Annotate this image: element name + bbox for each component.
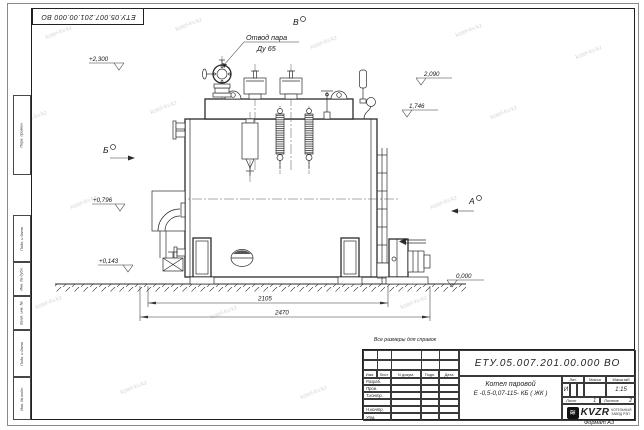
product-name-cell: Котел паровой Е -0,5-0,07-115- КБ ( ЖК ) [459,376,562,421]
lit-header: Лит. [562,376,584,383]
elevation-label: +0,796 [93,197,113,204]
lit-cell [570,383,577,397]
callout-line2: Ду 65 [256,44,277,53]
sheet-cell: Лист 1 [562,397,600,404]
sheet-value: 1 [593,398,596,404]
signature-cell [391,406,421,413]
row-label-prov: Пров. [363,385,391,392]
title-block: Изм. Лист N докум. Подп. Дата Разраб. Пр… [362,349,635,420]
signature-cell [391,385,421,392]
col-header-data: Дата [439,370,459,378]
grid-line [377,350,378,370]
row-label-utv: Утв. [363,413,391,421]
view-letter: В [293,17,299,27]
signature-cell [421,378,439,385]
mass-header: Масса [584,376,606,383]
support-leg [190,238,214,284]
left-wall-flanges [173,121,185,258]
elevation-mark-0796: +0,796 [92,197,125,211]
signature-cell [439,406,459,413]
view-letter: Б [103,145,109,155]
grid-line [439,350,440,370]
lit-cell [577,383,584,397]
signature-cell [421,399,439,406]
product-name-line1: Котел паровой [485,381,535,388]
elevation-label: 1,746 [409,103,425,110]
view-circle [301,17,306,22]
support-leg [338,238,362,284]
scale-value-cell: 1:15 [606,383,636,397]
company-cell: ≋ KVZR КОТЕЛЬНЫЙ ЗАВОД РЭП [562,404,636,421]
signature-cell [439,413,459,421]
scale-header: Масштаб [606,376,636,383]
sheets-label: Листов [604,398,619,403]
elevation-label: 2,090 [423,71,440,78]
signature-cell [421,392,439,399]
row-label-razrab: Разраб. [363,378,391,385]
grid-line [421,350,422,370]
sheets-cell: Листов 2 [600,397,636,404]
lit-value-cell: И [562,383,570,397]
view-label-b-left: Б [103,145,135,161]
sheet-label: Лист [566,398,576,403]
signature-cell [391,413,421,421]
format-label: Формат А3 [560,420,638,426]
company-sub-line2: ЗАВОД РЭП [611,413,631,417]
company-logo-icon: ≋ [567,407,579,419]
col-header-ndocum: N докум. [391,370,421,378]
row-label-nkontr: Н.контр. [363,406,391,413]
sheets-value: 2 [629,398,632,404]
elevation-label: +2,300 [89,56,109,63]
feedwater-elbow [152,191,185,258]
steam-outlet-callout: Отвод пара Ду 65 [223,33,300,68]
signature-cell [421,385,439,392]
signature-cell [439,399,459,406]
view-circle [111,145,116,150]
col-header-list: Лист [377,370,391,378]
row-label-tkontr: Т.контр. [363,392,391,399]
elevation-mark-2300: +2,300 [89,56,124,70]
signature-cell [391,392,421,399]
callout-line1: Отвод пара [246,33,287,42]
product-name-line2: Е -0,5-0,07-115- КБ ( ЖК ) [474,390,548,397]
row-label-blank [363,399,391,406]
drawing-sheet: kotel-kv.kz kotel-kv.kz kotel-kv.kz kote… [0,0,644,430]
view-label-b-top: В [293,17,306,28]
steam-outlet-valve [203,56,232,100]
signature-cell [391,378,421,385]
dimension-label: 2470 [274,310,289,317]
signature-cell [439,378,459,385]
elevation-label: 0,000 [456,273,472,280]
signature-cell [391,399,421,406]
doc-number: ЕТУ.05.007.201.00.000 ВО [475,358,621,369]
signature-cell [439,385,459,392]
elevation-mark-0143: +0,143 [98,258,133,272]
view-letter: А [468,196,475,206]
signature-cell [421,413,439,421]
manhole [231,250,253,267]
col-header-podp: Подп. [421,370,439,378]
reference-note: Все размеры для справок [352,337,458,343]
thermometer [360,70,367,103]
dimension-label: 2105 [257,296,272,303]
col-header-izm: Изм. [363,370,377,378]
view-circle [477,196,482,201]
mass-value-cell [584,383,606,397]
grid-line [391,350,392,370]
elevation-label: +0,143 [99,258,119,265]
elevation-mark-2090: 2,090 [416,71,452,85]
signature-cell [439,392,459,399]
company-logo-text: KVZR [581,407,610,418]
ground-line [55,284,466,292]
view-label-a-right: А [451,196,482,214]
signature-cell [421,406,439,413]
doc-number-cell: ЕТУ.05.007.201.00.000 ВО [459,350,636,376]
elevation-mark-1746: 1,746 [402,103,438,117]
